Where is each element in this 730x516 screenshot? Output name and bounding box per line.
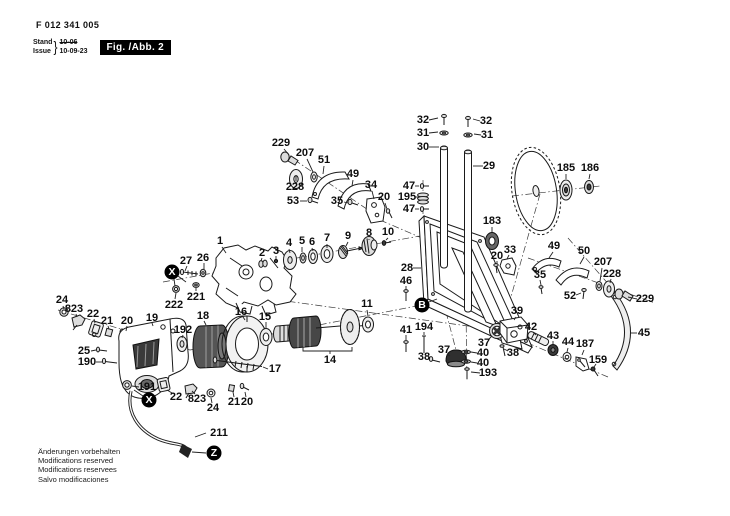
part-192-washer (177, 337, 187, 352)
part-221-washer (193, 283, 199, 288)
part-label-2: 2 (259, 247, 265, 259)
part-228-disc-right (604, 281, 615, 297)
part-label-50: 50 (578, 245, 590, 257)
leader-line-52 (576, 293, 581, 295)
part-label-15: 15 (259, 311, 271, 323)
part-label-222: 222 (165, 299, 183, 311)
part-label-30: 30 (417, 141, 429, 153)
part-label-51: 51 (318, 154, 330, 166)
part-207-washer-right (596, 282, 602, 291)
part-46-screw (404, 290, 408, 301)
part-5-washer (300, 253, 306, 263)
part-label-159: 159 (589, 354, 607, 366)
part-label-32: 32 (480, 115, 492, 127)
part-label-21: 21 (101, 315, 113, 327)
part-8-bevel-gear (362, 237, 377, 256)
part-label-32: 32 (417, 114, 429, 126)
note-line-en: Modifications reserved (38, 456, 120, 465)
part-3-pin (274, 259, 277, 262)
part-label-185: 185 (557, 162, 575, 174)
part-label-4: 4 (286, 237, 293, 249)
part-label-207: 207 (594, 256, 612, 268)
part-24-ring-lower (207, 389, 215, 397)
part-35-screw-right (539, 286, 543, 294)
leader-line-187 (582, 350, 584, 355)
part-2-bushing (259, 260, 267, 267)
part-label-195: 195 (398, 191, 416, 203)
part-label-28: 28 (401, 262, 413, 274)
part-label-193: 193 (479, 367, 497, 379)
leader-line-31 (429, 132, 438, 133)
part-label-22: 22 (87, 308, 99, 320)
part-29-rod (465, 150, 472, 312)
part-38-screw-right (500, 345, 505, 356)
leader-line-44 (567, 348, 568, 352)
part-9-pinion-shaft (339, 246, 364, 259)
part-20-screw-top (386, 209, 392, 218)
part-16-bearing-bracket (222, 316, 268, 372)
part-label-229: 229 (636, 293, 654, 305)
part-label-14: 14 (324, 354, 337, 366)
part-39-bracket (500, 317, 528, 343)
part-label-228: 228 (603, 268, 621, 280)
leader-line-211 (195, 433, 206, 437)
part-52-screw (582, 289, 586, 300)
view-marker-letter-X: X (168, 266, 175, 278)
part-label-191: 191 (138, 381, 156, 393)
part-14-armature (274, 310, 365, 355)
part-label-1: 1 (217, 235, 223, 247)
part-823-clip (72, 315, 85, 330)
part-159-screw (591, 367, 598, 376)
part-label-38: 38 (418, 351, 430, 363)
part-193-screw (465, 368, 469, 379)
part-label-47: 47 (403, 203, 415, 215)
note-line-de: Änderungen vorbehalten (38, 447, 120, 456)
part-186-nut (585, 181, 594, 194)
part-label-20: 20 (491, 250, 503, 262)
part-label-31: 31 (481, 129, 493, 141)
leader-line-49 (549, 252, 553, 258)
part-label-21: 21 (228, 396, 240, 408)
part-35-screw-top (348, 199, 358, 205)
part-label-823: 823 (65, 303, 83, 315)
part-label-186: 186 (581, 162, 599, 174)
part-label-24: 24 (207, 402, 220, 414)
modifications-note: Änderungen vorbehalten Modifications res… (38, 447, 120, 484)
leader-line-11 (367, 310, 368, 316)
part-label-16: 16 (235, 306, 247, 318)
part-label-37: 37 (438, 344, 450, 356)
note-line-es: Salvo modificaciones (38, 475, 120, 484)
part-label-42: 42 (525, 321, 537, 333)
part-11-bearing (363, 317, 374, 332)
part-label-207: 207 (296, 147, 314, 159)
leader-line-9 (346, 242, 348, 246)
part-20-screw-lower (240, 383, 249, 390)
part-25-screw (97, 347, 108, 352)
exploded-view-diagram: 2292075122853493435204719547323130323129… (0, 0, 730, 516)
part-32-screw (442, 114, 471, 127)
part-45-arc-segment (611, 292, 631, 370)
part-label-27: 27 (180, 255, 192, 267)
part-label-41: 41 (400, 324, 412, 336)
part-label-17: 17 (269, 363, 281, 375)
view-marker-letter-X: X (145, 394, 152, 406)
part-label-9: 9 (345, 230, 351, 242)
part-label-11: 11 (361, 298, 373, 310)
part-label-187: 187 (576, 338, 594, 350)
part-label-19: 19 (146, 312, 158, 324)
leader-line-25 (91, 350, 96, 351)
part-15-bearing (260, 329, 272, 346)
part-27-screw (180, 269, 198, 276)
part-21-nut-lower (229, 385, 235, 392)
note-line-fr: Modifications reservees (38, 465, 120, 474)
part-label-46: 46 (400, 275, 412, 287)
part-191-nut (123, 381, 132, 390)
part-label-20: 20 (378, 191, 390, 203)
part-30-rod (441, 146, 448, 268)
part-229-bolt-right (615, 289, 633, 301)
part-47-195-stack (418, 184, 429, 212)
leader-line-207 (600, 268, 602, 281)
part-7-flange-bushing (321, 246, 333, 263)
part-label-22: 22 (170, 391, 182, 403)
part-label-18: 18 (197, 310, 209, 322)
part-185-flange (560, 180, 572, 200)
part-222-nut (173, 286, 180, 293)
part-label-45: 45 (638, 327, 650, 339)
part-label-35: 35 (534, 269, 546, 281)
parts-diagram-page: F 012 341 005 Stand Issue } 10-06 10-09-… (0, 0, 730, 516)
part-label-29: 29 (483, 160, 495, 172)
part-label-39: 39 (511, 305, 523, 317)
part-label-31: 31 (417, 127, 429, 139)
part-label-10: 10 (382, 226, 394, 238)
part-label-52: 52 (564, 290, 576, 302)
part-207-washer-top (311, 172, 317, 182)
part-label-6: 6 (309, 236, 315, 248)
part-4-disc (284, 251, 297, 270)
part-label-35: 35 (331, 195, 343, 207)
part-label-38: 38 (507, 347, 519, 359)
part-label-229: 229 (272, 137, 290, 149)
leader-line-10 (386, 238, 388, 240)
leader-line-51 (323, 166, 324, 174)
part-label-3: 3 (273, 245, 279, 257)
part-label-20: 20 (121, 315, 133, 327)
part-183-bushing (486, 233, 499, 250)
view-marker-letter-B: B (418, 299, 426, 311)
part-6-bearing (309, 250, 318, 264)
part-label-221: 221 (187, 291, 205, 303)
part-label-211: 211 (210, 427, 228, 439)
part-22-brush-holder-lower (157, 377, 170, 392)
part-label-33: 33 (504, 244, 516, 256)
part-label-5: 5 (299, 235, 305, 247)
part-label-192: 192 (174, 324, 192, 336)
part-43-nut (548, 345, 558, 356)
leader-line-50 (580, 257, 584, 264)
part-label-194: 194 (415, 321, 434, 333)
part-190-screw (102, 358, 117, 363)
leader-line-186 (589, 174, 590, 179)
part-label-183: 183 (483, 215, 501, 227)
part-label-228: 228 (286, 181, 304, 193)
part-label-7: 7 (324, 232, 330, 244)
part-label-53: 53 (287, 195, 299, 207)
view-marker-letter-Z: Z (211, 447, 218, 459)
part-label-34: 34 (365, 179, 378, 191)
part-187-bracket (576, 357, 589, 371)
leader-line-32 (429, 118, 438, 120)
part-label-190: 190 (78, 356, 96, 368)
part-label-823: 823 (188, 393, 206, 405)
part-38-screw-left (429, 357, 440, 362)
part-label-26: 26 (197, 252, 209, 264)
part-label-49: 49 (548, 240, 560, 252)
part-label-20: 20 (241, 396, 253, 408)
part-label-49: 49 (347, 168, 359, 180)
part-44-ring (563, 353, 571, 362)
part-1-gear-housing (212, 245, 296, 315)
part-21-nut (105, 328, 113, 336)
part-41-screw (404, 341, 408, 352)
part-label-43: 43 (547, 330, 559, 342)
leader-line-17 (263, 367, 268, 369)
part-label-8: 8 (366, 227, 372, 239)
part-50-guard-right (556, 268, 589, 285)
part-31-washer (440, 131, 472, 137)
part-26-washer (200, 269, 206, 277)
part-label-44: 44 (562, 336, 575, 348)
